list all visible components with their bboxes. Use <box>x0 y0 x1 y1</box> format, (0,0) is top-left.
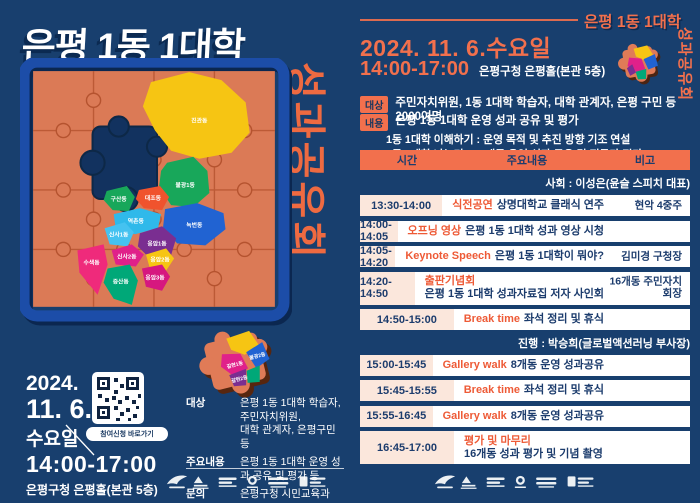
text-logo-icon <box>487 478 505 480</box>
loose-puzzle-piece: 갈현1동 불광2동 갈현2동 <box>190 315 282 407</box>
panel-badge-vertical: 성과공유회 <box>675 27 696 101</box>
schedule-row: 16:45-17:00 평가 및 마무리 16개동 성과 평가 및 기념 촬영 <box>360 431 690 464</box>
row-main: Gallery walk8개동 운영 성과공유 <box>433 406 690 427</box>
panel-badge-title: 은평 1동 1대학 <box>584 10 681 32</box>
content-tag: 내용 <box>360 114 388 131</box>
mc-line: 사회 : 이성은(윤슬 스피치 대표) <box>360 175 690 190</box>
event-venue: 은평구청 은평홀(본관 5층) <box>26 481 158 498</box>
row-time: 16:45-17:00 <box>360 431 454 464</box>
content-row: 내용 은평 1동 1대학 운영 성과 공유 및 평가 <box>360 114 692 131</box>
text-logo-icon <box>219 478 237 480</box>
svg-text:녹번동: 녹번동 <box>186 221 203 229</box>
svg-text:수색동: 수색동 <box>83 259 100 267</box>
row-keyword: Break time <box>464 313 520 325</box>
row-text: 8개동 운영 성과공유 <box>511 410 604 422</box>
row-time: 15:45-15:55 <box>360 380 454 401</box>
row-time: 15:00-15:45 <box>360 355 433 376</box>
schedule-row: 14:00-14:05 오프닝 영상은평 1동 1대학 성과 영상 시청 <box>360 221 690 242</box>
svg-text:응암2동: 응암2동 <box>150 256 170 264</box>
schedule-row: 15:45-15:55 Break time좌석 정리 및 휴식 <box>360 380 690 401</box>
schedule-row: 15:00-15:45 Gallery walk8개동 운영 성과공유 <box>360 355 690 376</box>
mountain-logo-icon <box>194 476 203 483</box>
row-main: 오프닝 영상은평 1동 1대학 성과 영상 시청 <box>398 221 691 242</box>
target-tag: 대상 <box>360 96 388 113</box>
svg-text:구산동: 구산동 <box>111 195 128 203</box>
row-keyword: 출판기념회 <box>425 275 476 287</box>
row-note: 16개동 주민자치회장 <box>606 277 682 300</box>
panel-time-row: 14:00-17:00 은평구청 은평홀(본관 5층) <box>360 58 605 81</box>
panel-time: 14:00-17:00 <box>360 58 469 81</box>
puzzle-piece-icon <box>612 36 666 88</box>
row-keyword: 식전공연 <box>452 199 492 211</box>
info-text-line: 은평 1동 1대학 학습자, 주민자치위원, <box>240 397 346 424</box>
schedule-table: 시간 주요내용 비고 사회 : 이성은(윤슬 스피치 대표) 13:30-14:… <box>360 150 690 469</box>
row-text: 좌석 정리 및 휴식 <box>524 384 604 396</box>
svg-text:진관동: 진관동 <box>191 116 208 124</box>
row-time: 14:05-14:20 <box>360 246 395 267</box>
poster-page: 은평 1동 1대학 성과공유회 <box>0 0 700 503</box>
svg-text:신사1동: 신사1동 <box>109 230 129 238</box>
wordmark-logo-icon <box>536 478 556 480</box>
row-text: 좌석 정리 및 휴식 <box>524 313 604 325</box>
event-day: 11. 6. <box>26 394 92 425</box>
info-text-line: 대학 관계자, 은평구민 등 <box>240 424 346 451</box>
book-logo-icon <box>568 476 576 486</box>
header-time: 시간 <box>360 152 454 168</box>
header-note: 비고 <box>600 152 690 168</box>
schedule-row: 13:30-14:00 식전공연상명대학교 클래식 연주 현악 4중주 <box>360 195 690 216</box>
puzzle-map-board: 진관동 불광1동 구산동 대조동 역촌동 녹번동 신사1동 응암1동 신사2동 … <box>20 58 292 328</box>
schedule-header: 시간 주요내용 비고 <box>360 150 690 170</box>
row-text: 16개동 성과 평가 및 기념 촬영 <box>464 448 604 461</box>
svg-text:대조동: 대조동 <box>145 194 162 202</box>
row-text: 은평 1동 1대학 성과 영상 시청 <box>465 225 604 237</box>
qr-code-label: 참여신청 바로가기 <box>86 427 168 441</box>
row-note: 김미경 구청장 <box>606 251 682 263</box>
partner-logos-right <box>428 473 606 491</box>
info-row-target: 대상 은평 1동 1대학 학습자, 주민자치위원, 대학 관계자, 은평구민 등 <box>186 397 346 451</box>
row-text: 은평 1동 1대학 성과자료집 저자 사인회 <box>425 288 604 301</box>
row-main: 평가 및 마무리 16개동 성과 평가 및 기념 촬영 <box>454 431 690 464</box>
wordmark-logo-icon <box>268 478 288 480</box>
bird-logo-icon <box>167 476 187 485</box>
panel-venue: 은평구청 은평홀(본관 5층) <box>479 63 605 79</box>
row-main: Keynote Speech은평 1동 1대학이 뭐야? 김미경 구청장 <box>395 246 690 267</box>
partner-logos-left <box>160 473 338 491</box>
row-time: 13:30-14:00 <box>360 195 442 216</box>
svg-text:불광1동: 불광1동 <box>176 181 196 189</box>
row-time: 14:50-15:00 <box>360 309 454 330</box>
row-keyword: Keynote Speech <box>405 250 491 262</box>
svg-text:응암1동: 응암1동 <box>147 239 167 247</box>
row-main: Gallery walk8개동 운영 성과공유 <box>433 355 690 376</box>
row-time: 15:55-16:45 <box>360 406 433 427</box>
row-time: 14:00-14:05 <box>360 221 398 242</box>
content-subline-1: 1동 1대학 이해하기 : 운영 목적 및 추진 방향 기조 연설 <box>386 131 692 147</box>
event-time: 14:00-17:00 <box>26 451 157 478</box>
schedule-row: 15:55-16:45 Gallery walk8개동 운영 성과공유 <box>360 406 690 427</box>
row-main: 식전공연상명대학교 클래식 연주 현악 4중주 <box>442 195 690 216</box>
svg-text:응암3동: 응암3동 <box>145 274 165 282</box>
content-text: 은평 1동 1대학 운영 성과 공유 및 평가 <box>395 114 578 128</box>
row-main: Break time좌석 정리 및 휴식 <box>454 309 690 330</box>
row-keyword: 평가 및 마무리 <box>464 435 531 447</box>
svg-text:역촌동: 역촌동 <box>128 217 145 225</box>
schedule-row: 14:05-14:20 Keynote Speech은평 1동 1대학이 뭐야?… <box>360 246 690 267</box>
schedule-row: 14:50-15:00 Break time좌석 정리 및 휴식 <box>360 309 690 330</box>
book-logo-icon <box>300 476 308 486</box>
info-label: 대상 <box>186 397 232 451</box>
event-year: 2024. <box>26 372 79 396</box>
row-text: 상명대학교 클래식 연주 <box>497 199 604 211</box>
header-content: 주요내용 <box>454 152 600 168</box>
svg-text:증산동: 증산동 <box>113 278 130 286</box>
schedule-row: 14:20-14:50 출판기념회 은평 1동 1대학 성과자료집 저자 사인회… <box>360 272 690 305</box>
header-hairline <box>360 19 578 21</box>
svg-text:신사2동: 신사2동 <box>117 252 137 260</box>
row-keyword: Gallery walk <box>443 410 507 422</box>
bird-logo-icon <box>435 476 455 485</box>
row-main: 출판기념회 은평 1동 1대학 성과자료집 저자 사인회 16개동 주민자치회장 <box>415 272 690 305</box>
footer-divider <box>186 468 344 469</box>
row-text: 8개동 운영 성과공유 <box>511 359 604 371</box>
row-keyword: 오프닝 영상 <box>408 225 462 237</box>
host-line: 진행 : 박승희(글로벌액션러닝 부사장) <box>360 335 690 350</box>
qr-code-icon <box>92 372 144 424</box>
row-keyword: Gallery walk <box>443 359 507 371</box>
row-keyword: Break time <box>464 384 520 396</box>
row-time: 14:20-14:50 <box>360 272 415 305</box>
mountain-logo-icon <box>462 476 471 483</box>
row-main: Break time좌석 정리 및 휴식 <box>454 380 690 401</box>
row-text: 은평 1동 1대학이 뭐야? <box>495 250 604 262</box>
row-note: 현악 4중주 <box>606 200 682 212</box>
